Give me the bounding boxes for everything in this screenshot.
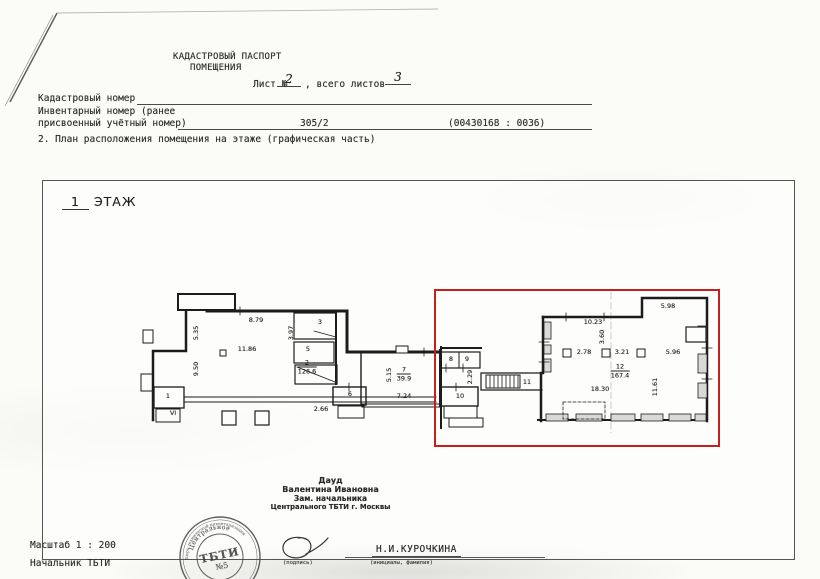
room-area: 39.9 [397,375,411,383]
handwritten-signature [268,530,338,564]
room-number: 2 [298,359,317,368]
dimension-label: 11.86 [238,345,257,353]
dimension-label: 3 [318,318,322,326]
dimension-label: 6 [348,390,352,398]
scanned-document-page: КАДАСТРОВЫЙ ПАСПОРТ ПОМЕЩЕНИЯ Лист № 2 ,… [0,0,820,579]
room-area: 126.6 [298,368,317,376]
dimension-label: 1 [166,392,170,400]
round-seal: Центральное Бюро технической инвентариза… [176,514,264,579]
seal-number-text: №5 [215,561,229,572]
dimension-label: 5 [306,345,310,353]
room-area-stamp: 2126.6 [298,359,317,376]
dimension-label: 2.66 [314,405,328,413]
room-area-stamp: 739.9 [397,366,411,383]
dimension-label: 5.15 [385,368,393,382]
room-number: 7 [397,366,411,375]
dimension-label: VI [170,409,176,417]
dimension-label: 5.35 [192,326,200,340]
dimension-label: 7.24 [397,392,411,400]
dimension-label: 8.79 [249,316,263,324]
highlight-rectangle [434,289,720,447]
dimension-label: 3.97 [287,326,295,340]
dimension-label: 9.50 [192,362,200,376]
